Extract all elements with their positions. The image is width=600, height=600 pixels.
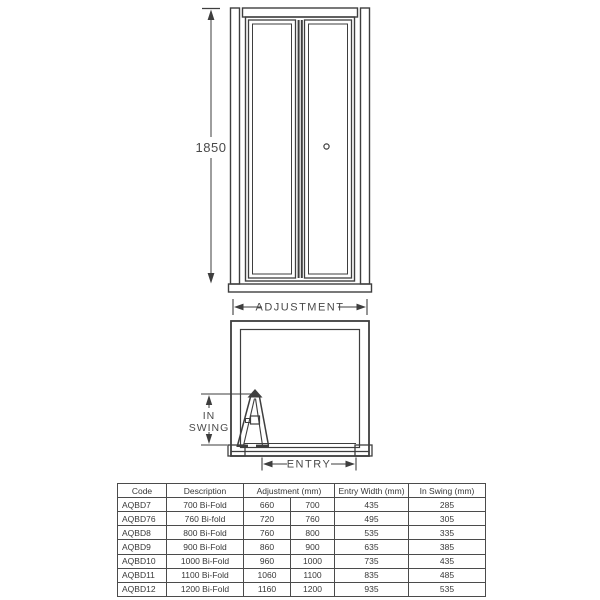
entry-width-cell: 495 [335, 512, 409, 526]
arrow-left-icon [263, 461, 273, 468]
adjustment-min-cell: 1060 [244, 568, 291, 582]
arrow-left-icon [234, 304, 244, 311]
header-entry-width: Entry Width (mm) [335, 484, 409, 498]
code-cell: AQBD10 [118, 554, 167, 568]
description-cell: 900 Bi-Fold [167, 540, 244, 554]
adjustment-min-cell: 720 [244, 512, 291, 526]
left-door-panel [249, 20, 296, 278]
adjustment-min-cell: 660 [244, 498, 291, 512]
code-cell: AQBD11 [118, 568, 167, 582]
arrow-down-icon [206, 434, 212, 444]
height-dimension: 1850 [196, 9, 227, 284]
in-swing-cell: 385 [409, 540, 486, 554]
description-cell: 700 Bi-Fold [167, 498, 244, 512]
description-cell: 1100 Bi-Fold [167, 568, 244, 582]
right-wall-profile [361, 8, 370, 284]
adjustment-max-cell: 1100 [291, 568, 335, 582]
left-wall-profile [231, 8, 240, 284]
in-swing-cell: 485 [409, 568, 486, 582]
right-panel-outer-edge [260, 397, 269, 446]
adjustment-max-cell: 900 [291, 540, 335, 554]
table-row: AQBD9 900 Bi-Fold 860 900 635 385 [118, 540, 486, 554]
in-swing-cell: 305 [409, 512, 486, 526]
entry-width-cell: 935 [335, 582, 409, 596]
table-row: AQBD11 1100 Bi-Fold 1060 1100 835 485 [118, 568, 486, 582]
adjustment-max-cell: 800 [291, 526, 335, 540]
table-row: AQBD7 700 Bi-Fold 660 700 435 285 [118, 498, 486, 512]
plan-view [228, 321, 372, 456]
specification-table: Code Description Adjustment (mm) Entry W… [117, 483, 486, 597]
fold-apex [248, 389, 263, 398]
arrow-right-icon [346, 461, 356, 468]
in-swing-cell: 285 [409, 498, 486, 512]
height-dim-label: 1850 [196, 140, 227, 155]
left-panel-outer-edge [238, 397, 251, 446]
header-in-swing: In Swing (mm) [409, 484, 486, 498]
table-row: AQBD76 760 Bi-fold 720 760 495 305 [118, 512, 486, 526]
in-swing-cell: 335 [409, 526, 486, 540]
adjustment-min-cell: 760 [244, 526, 291, 540]
header-code: Code [118, 484, 167, 498]
door-frame [246, 17, 355, 281]
adjustment-min-cell: 960 [244, 554, 291, 568]
adjustment-dim-label: ADJUSTMENT [256, 302, 345, 314]
bottom-sill [229, 284, 372, 292]
code-cell: AQBD8 [118, 526, 167, 540]
table-row: AQBD8 800 Bi-Fold 760 800 535 335 [118, 526, 486, 540]
adjustment-dimension: ADJUSTMENT [233, 299, 367, 315]
adjustment-max-cell: 1200 [291, 582, 335, 596]
arrow-right-icon [357, 304, 367, 311]
code-cell: AQBD9 [118, 540, 167, 554]
in-swing-cell: 535 [409, 582, 486, 596]
code-cell: AQBD7 [118, 498, 167, 512]
entry-dim-label: ENTRY [287, 459, 332, 471]
description-cell: 1000 Bi-Fold [167, 554, 244, 568]
entry-width-cell: 835 [335, 568, 409, 582]
code-cell: AQBD76 [118, 512, 167, 526]
adjustment-min-cell: 860 [244, 540, 291, 554]
table-row: AQBD12 1200 Bi-Fold 1160 1200 935 535 [118, 582, 486, 596]
description-cell: 760 Bi-fold [167, 512, 244, 526]
adjustment-max-cell: 760 [291, 512, 335, 526]
left-door-glass [253, 24, 292, 274]
entry-width-cell: 435 [335, 498, 409, 512]
adjustment-max-cell: 700 [291, 498, 335, 512]
entry-width-cell: 535 [335, 526, 409, 540]
entry-dimension: ENTRY [262, 458, 356, 471]
technical-drawing: 1850 ADJUSTMENT [0, 0, 600, 480]
in-swing-dimension: IN SWING [189, 394, 253, 445]
front-elevation-view [229, 8, 372, 292]
door-knob-icon [324, 144, 329, 149]
enclosure-outline [231, 321, 369, 456]
folded-door [237, 389, 270, 446]
adjustment-min-cell: 1160 [244, 582, 291, 596]
header-adjustment: Adjustment (mm) [244, 484, 335, 498]
table-header-row: Code Description Adjustment (mm) Entry W… [118, 484, 486, 498]
bifold-door-spec-sheet: 1850 ADJUSTMENT [0, 0, 600, 600]
header-description: Description [167, 484, 244, 498]
description-cell: 1200 Bi-Fold [167, 582, 244, 596]
arrow-down-icon [208, 273, 215, 284]
tray-outline [241, 330, 360, 448]
in-swing-cell: 435 [409, 554, 486, 568]
code-cell: AQBD12 [118, 582, 167, 596]
top-frame-bar [243, 8, 358, 17]
table-row: AQBD10 1000 Bi-Fold 960 1000 735 435 [118, 554, 486, 568]
entry-width-cell: 735 [335, 554, 409, 568]
in-swing-label-line1: IN [203, 410, 216, 422]
entry-width-cell: 635 [335, 540, 409, 554]
adjustment-max-cell: 1000 [291, 554, 335, 568]
description-cell: 800 Bi-Fold [167, 526, 244, 540]
